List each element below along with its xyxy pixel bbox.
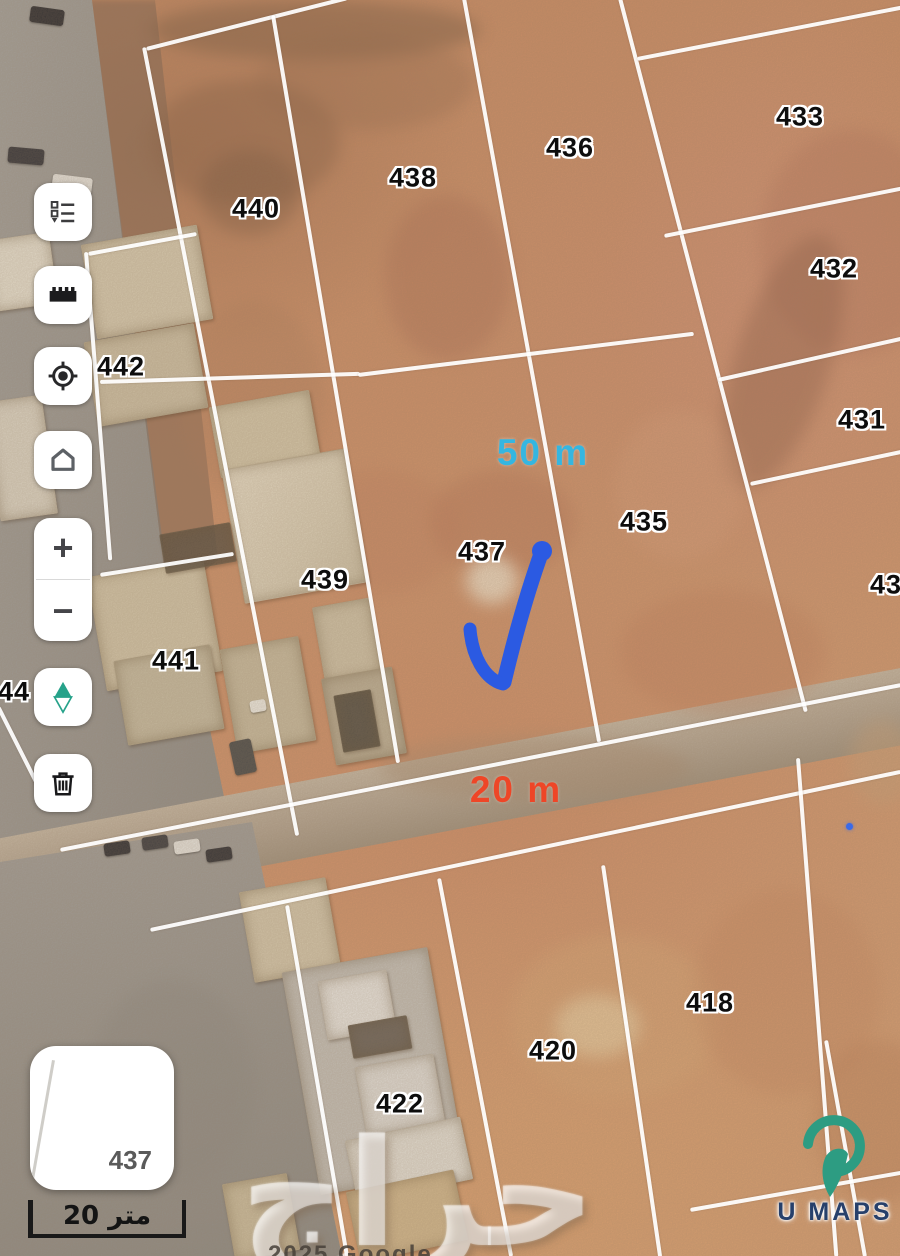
vehicle (7, 146, 44, 165)
satellite-map-view[interactable]: 440 438 436 433 432 431 430 442 441 439 … (0, 0, 900, 1256)
parcel-label: 439 (301, 565, 349, 596)
locate-icon (47, 360, 79, 392)
selected-parcel-card[interactable]: 437 (30, 1046, 174, 1190)
parcel-label: 436 (546, 133, 594, 164)
my-location-button[interactable] (34, 347, 92, 405)
parcel-label: 433 (776, 102, 824, 133)
parcel-label: 435 (620, 507, 668, 538)
trash-icon (48, 768, 78, 798)
parcel-label: 432 (810, 254, 858, 285)
compass-button[interactable] (34, 668, 92, 726)
delete-button[interactable] (34, 754, 92, 812)
parcel-shape-line (30, 1060, 54, 1183)
parcel-label: 418 (686, 988, 734, 1019)
zoom-in-button[interactable]: + (34, 518, 92, 579)
parcel-label: 440 (232, 194, 280, 225)
zoom-control: + − (34, 518, 92, 641)
width-measurement-label: 50 m (497, 432, 589, 474)
parcel-label: 441 (152, 646, 200, 677)
home-button[interactable] (34, 431, 92, 489)
parcel-label: 420 (529, 1036, 577, 1067)
map-pin-icon (794, 1112, 874, 1200)
selected-parcel-number: 437 (109, 1145, 152, 1176)
scale-bar-line (28, 1234, 186, 1239)
parcel-label: 442 (97, 352, 145, 383)
parcel-label: 430 (870, 570, 900, 601)
umaps-logo: U MAPS (770, 1112, 900, 1232)
map-marker-dot (846, 823, 853, 830)
zoom-out-button[interactable]: − (34, 580, 92, 641)
compass-icon (48, 680, 78, 714)
layers-list-button[interactable] (34, 183, 92, 241)
parcel-label: 431 (838, 405, 886, 436)
parcel-label: 438 (389, 163, 437, 194)
scale-bar-label: 20 متر (28, 1201, 186, 1231)
umaps-logo-text: U MAPS (770, 1198, 900, 1227)
parcel-label-partial: 44 (0, 677, 30, 708)
map-scale-bar: 20 متر (28, 1194, 186, 1238)
parcel-label: 422 (376, 1089, 424, 1120)
parcel-label: 437 (458, 537, 506, 568)
home-icon (47, 444, 79, 476)
map-attribution: 2025 Google (268, 1241, 433, 1256)
road-measurement-label: 20 m (470, 769, 562, 811)
list-icon (48, 197, 78, 227)
ruler-icon (47, 279, 79, 311)
measure-button[interactable] (34, 266, 92, 324)
